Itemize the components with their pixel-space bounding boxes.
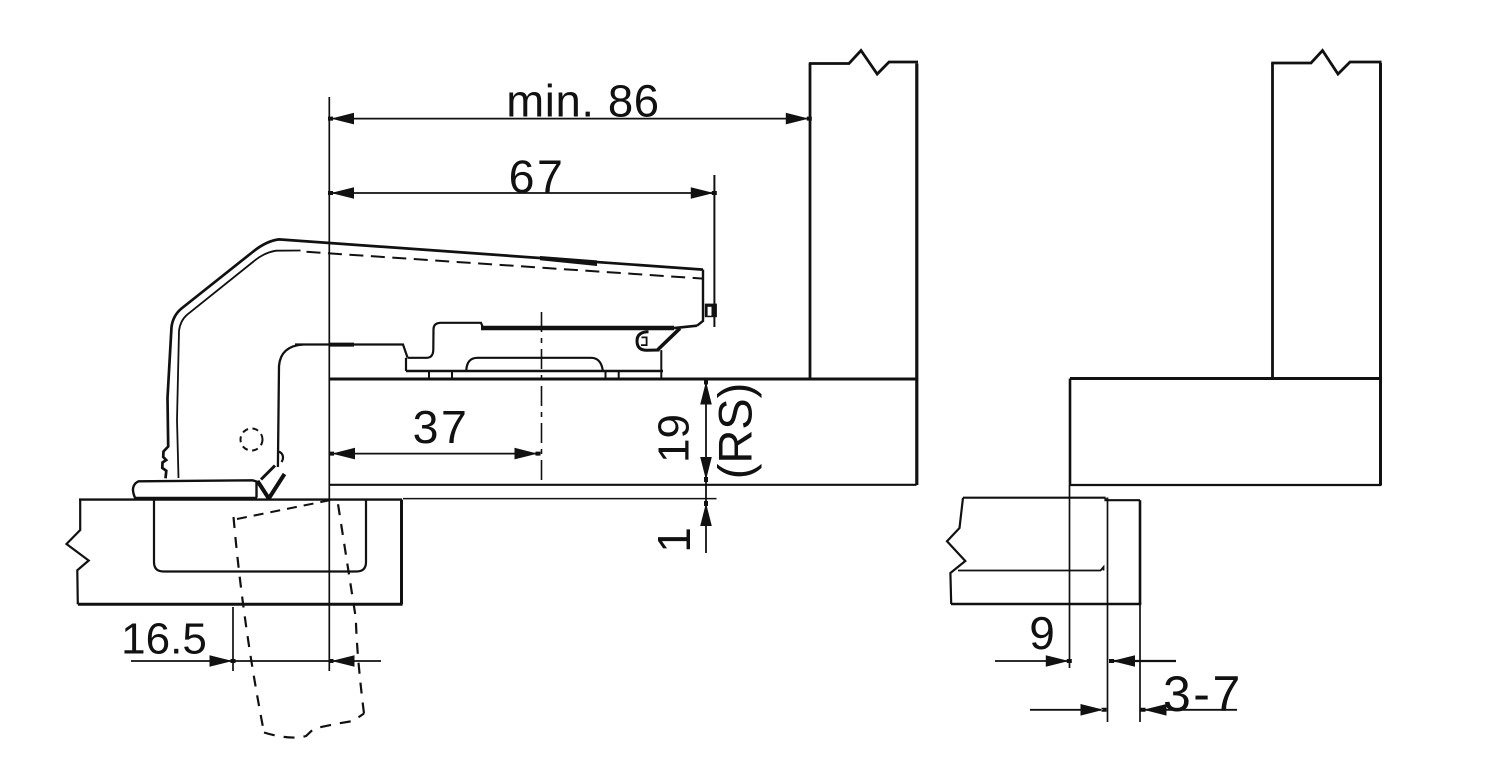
svg-text:(RS): (RS) — [709, 383, 762, 480]
svg-text:67: 67 — [509, 151, 566, 203]
svg-text:min. 86: min. 86 — [506, 76, 659, 127]
svg-text:19: 19 — [650, 414, 699, 463]
svg-text:16.5: 16.5 — [121, 615, 207, 664]
svg-text:9: 9 — [1029, 607, 1055, 659]
svg-text:37: 37 — [413, 401, 470, 453]
svg-text:3-7: 3-7 — [1163, 666, 1243, 722]
svg-text:1: 1 — [648, 527, 700, 553]
